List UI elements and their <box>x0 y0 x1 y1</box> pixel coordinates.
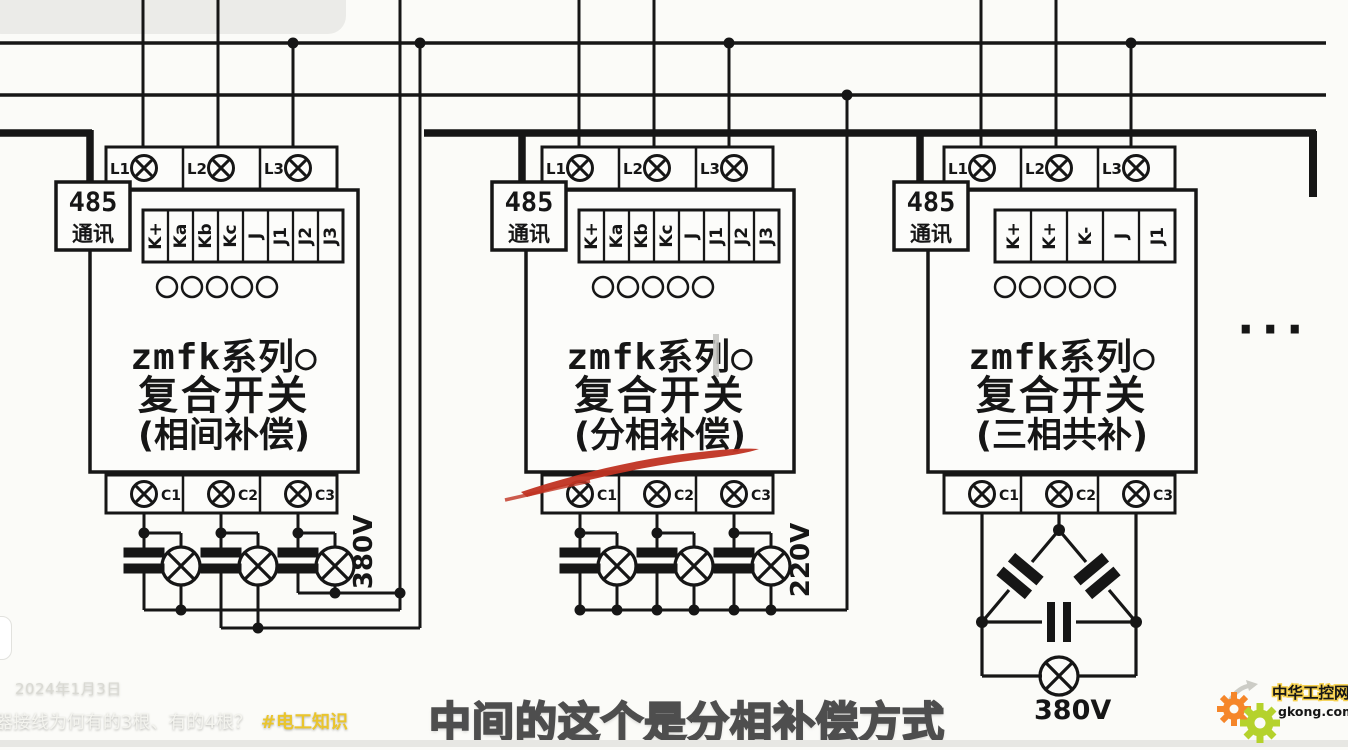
lamp-icon <box>598 547 636 585</box>
terminal-label: L1 <box>948 160 968 178</box>
module-3-voltage-label: 380V <box>1034 695 1111 726</box>
module-1-series-title: zmfk系列○ <box>130 337 317 378</box>
terminal-label: C1 <box>597 488 617 504</box>
module-2-signal-strip: K+ Ka Kb Kc J J1 J2 J3 <box>579 210 779 262</box>
comm-label: 485 <box>907 187 956 218</box>
capacitor-icon <box>279 549 317 572</box>
logo-arrow-head <box>1246 680 1258 691</box>
terminal-label: L3 <box>1102 160 1122 178</box>
signal-terminal-label: Kc <box>657 224 677 247</box>
hashtag-link[interactable]: #电工知识 <box>261 712 348 733</box>
signal-terminal-label: Kb <box>196 223 216 248</box>
module-2-comm-box: 485 通讯 <box>492 182 566 250</box>
capacitor-icon <box>638 549 676 572</box>
terminal-label: L1 <box>546 160 566 178</box>
module-2-feed-wires <box>579 0 735 147</box>
module-1-phase-terminal-row: L1 L2 L3 <box>106 147 337 189</box>
signal-terminal-label: K+ <box>1004 222 1024 249</box>
signal-terminal-label: J2 <box>296 227 316 246</box>
module-2-phase-terminal-row: L1 L2 L3 <box>542 147 773 189</box>
signal-terminal-label: K+ <box>582 222 602 249</box>
wiring-diagram: L1 L2 L3 485 通讯 K+ <box>0 0 1348 747</box>
video-date: 2024年1月3日 <box>15 678 122 699</box>
video-question-text: 器接线为何有的3根、有的4根？ <box>0 712 252 733</box>
module-1-signal-strip: K+ Ka Kb Kc J J1 J2 J3 <box>143 210 343 262</box>
signal-terminal-label: J <box>1112 233 1132 240</box>
signal-terminal-label: Kc <box>221 224 241 247</box>
lamp-icon <box>239 547 277 585</box>
module-3: L1 L2 L3 485 通讯 K+ K+ K- J <box>894 0 1196 726</box>
signal-terminal-label: J1 <box>271 227 291 246</box>
module-3-mode-label: (三相共补) <box>976 416 1148 456</box>
capacitor-icon <box>561 549 599 572</box>
terminal-label: L2 <box>623 160 643 178</box>
module-2-series-title: zmfk系列○ <box>566 337 753 378</box>
terminal-label: L3 <box>264 160 284 178</box>
logo-gear-green-icon <box>1240 703 1280 743</box>
module-1-comm-box: 485 通讯 <box>56 182 130 250</box>
comm-label: 通讯 <box>910 222 952 246</box>
lamp-icon <box>162 547 200 585</box>
signal-terminal-label: J1 <box>1148 227 1168 246</box>
terminal-label: L3 <box>700 160 720 178</box>
terminal-label: L2 <box>1025 160 1045 178</box>
module-1-mode-label: (相间补偿) <box>138 416 310 456</box>
comm-label: 通讯 <box>72 222 114 246</box>
logo-title: 中华工控网 <box>1272 683 1348 702</box>
module-3-delta-capacitor-bank <box>976 513 1142 695</box>
module-1-series-line2: 复合开关 <box>138 373 310 419</box>
more-modules-ellipsis: ··· <box>1237 302 1310 356</box>
terminal-label: C3 <box>1153 488 1173 504</box>
module-2-series-line2: 复合开关 <box>574 373 746 419</box>
lamp-icon <box>1040 657 1078 695</box>
comm-label: 485 <box>505 187 554 218</box>
module-2: L1 L2 L3 485 通讯 K+ <box>492 0 847 616</box>
module-1-feed-wires <box>143 0 299 147</box>
capacitor-icon <box>715 549 753 572</box>
video-frame: L1 L2 L3 485 通讯 K+ <box>0 0 1348 747</box>
module-3-cap-terminal-row: C1 C2 C3 <box>944 475 1175 513</box>
terminal-label: L2 <box>187 160 207 178</box>
module-3-series-title: zmfk系列○ <box>968 337 1155 378</box>
module-3-comm-box: 485 通讯 <box>894 182 968 250</box>
module-3-phase-terminal-row: L1 L2 L3 <box>944 147 1175 189</box>
comm-label: 通讯 <box>508 222 550 246</box>
signal-terminal-label: Kb <box>632 223 652 248</box>
signal-terminal-label: K+ <box>146 222 166 249</box>
lamp-icon <box>675 547 713 585</box>
signal-terminal-label: Ka <box>171 224 191 249</box>
terminal-label: C3 <box>751 488 771 504</box>
site-logo: 中华工控网 中华工控网 gkong.com <box>1196 676 1348 747</box>
comm-label: 485 <box>69 187 118 218</box>
signal-terminal-label: Ka <box>607 224 627 249</box>
signal-terminal-label: J1 <box>707 227 727 246</box>
capacitor-icon <box>999 555 1042 597</box>
terminal-label: C1 <box>999 488 1019 504</box>
module-1-voltage-label: 380V <box>349 515 379 589</box>
capacitor-icon <box>125 549 163 572</box>
terminal-label: L1 <box>110 160 130 178</box>
capacitor-icon <box>202 549 240 572</box>
terminal-label: C1 <box>161 488 181 504</box>
module-1-cap-terminal-row: C1 C2 C3 <box>106 475 337 513</box>
signal-terminal-label: K- <box>1076 227 1096 246</box>
lamp-icon <box>752 547 790 585</box>
video-title: 器接线为何有的3根、有的4根？#电工知识 <box>0 708 348 734</box>
left-ui-fragment <box>0 616 12 660</box>
cursor-artifact <box>713 334 719 377</box>
signal-terminal-label: J3 <box>321 227 341 246</box>
module-3-series-line2: 复合开关 <box>976 373 1148 419</box>
terminal-label: C2 <box>238 488 258 504</box>
terminal-label: C2 <box>674 488 694 504</box>
logo-domain: gkong.com <box>1278 704 1348 719</box>
signal-terminal-label: J2 <box>732 227 752 246</box>
signal-terminal-label: J <box>682 233 702 240</box>
module-3-signal-strip: K+ K+ K- J J1 <box>995 210 1175 262</box>
terminal-label: C2 <box>1076 488 1096 504</box>
terminal-label: C3 <box>315 488 335 504</box>
module-3-feed-wires <box>981 0 1137 147</box>
progress-bar-track[interactable] <box>0 740 1348 747</box>
signal-terminal-label: J <box>246 233 266 240</box>
signal-terminal-label: K+ <box>1040 222 1060 249</box>
capacitor-icon <box>1076 555 1119 597</box>
signal-terminal-label: J3 <box>757 227 777 246</box>
